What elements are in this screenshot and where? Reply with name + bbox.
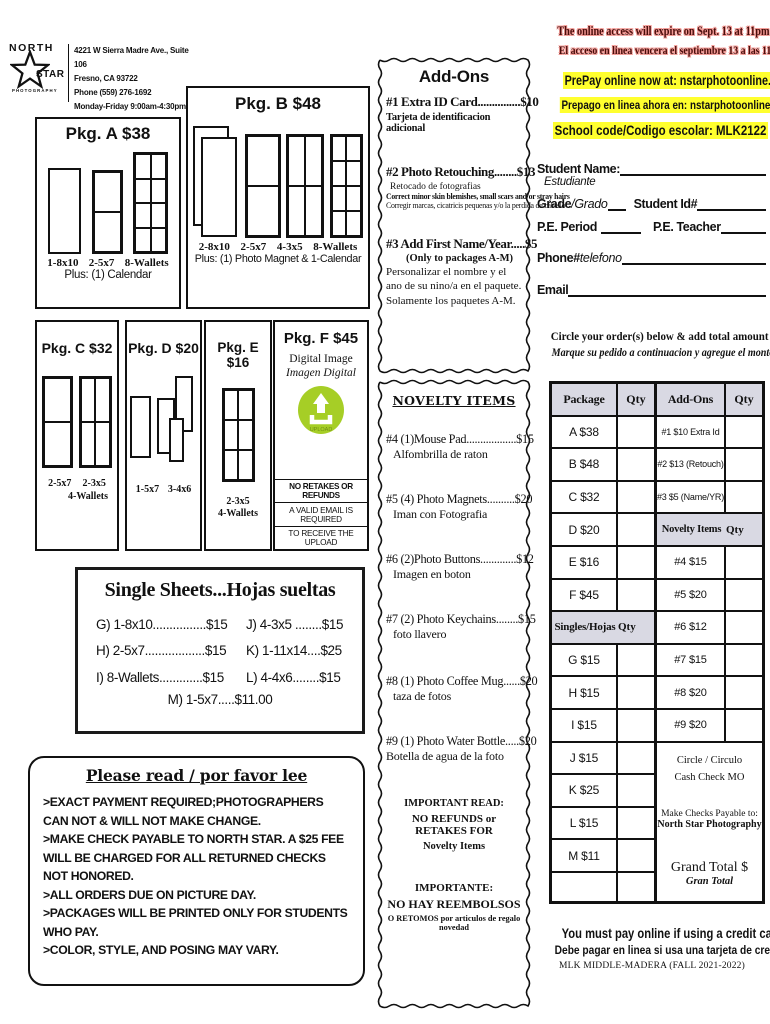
package-b-title: Pkg. B $48	[188, 94, 368, 114]
package-c-thumbnails	[37, 372, 117, 468]
student-name-label: Student Name:	[537, 162, 620, 176]
package-b-box: Pkg. B $48 2-8x10 2-5x7 4-3x5 8-Wallets …	[186, 86, 370, 309]
important-line: Novelty Items	[386, 841, 522, 852]
qty-cell[interactable]	[618, 514, 654, 545]
print-3x5-thumb	[79, 376, 112, 468]
qty-cell[interactable]	[618, 710, 654, 741]
novelty-items-title: NOVELTY ITEMS	[386, 393, 522, 408]
student-id-label: Student Id#	[634, 197, 698, 211]
package-c-labels: 2-5x7 2-3x5	[37, 478, 117, 489]
important-line: O RETOMOS por articulos de regalo noveda…	[386, 914, 522, 932]
addon-row-2: #2 $13 (Retouch)	[657, 449, 762, 482]
package-a-plus: Plus: (1) Calendar	[37, 269, 179, 281]
checks-payable-label: Make Checks Payable to:	[661, 809, 758, 819]
addons-title: Add-Ons	[386, 67, 522, 87]
thumb-label: 8-Wallets	[125, 257, 169, 269]
checks-payable-name: North Star Photography	[657, 819, 761, 830]
qty-cell[interactable]	[618, 775, 654, 806]
grand-total-label-es: Gran Total	[686, 876, 733, 887]
qty-cell[interactable]	[618, 873, 654, 901]
thumb-label: 4-Wallets	[218, 508, 258, 519]
thumb-label: 2-3x5	[83, 478, 106, 489]
print-5x7-thumb	[130, 396, 151, 458]
qty-cell[interactable]	[726, 710, 762, 741]
package-row-f: F $45	[552, 580, 654, 613]
thumb-label: 4-Wallets	[68, 491, 108, 502]
print-3x5-wallets-thumb	[222, 388, 255, 482]
please-read-title: Please read / por favor lee	[43, 766, 350, 785]
upload-icon: UPLOAD	[275, 385, 367, 435]
print-5x7-thumb	[92, 170, 123, 254]
package-row-b: B $48	[552, 449, 654, 482]
novelty-item-6: #6 (2)Photo Buttons.............$12	[386, 552, 522, 567]
package-f-notes: NO RETAKES OR REFUNDS A VALID EMAIL IS R…	[275, 479, 367, 550]
wallets-thumb	[133, 152, 168, 254]
qty-cell[interactable]	[726, 645, 762, 676]
thumb-label: 2-5x7	[48, 478, 71, 489]
addon-item-3: #3 Add First Name/Year.....$5	[386, 236, 522, 252]
thumb-label: 1-5x7	[136, 484, 159, 495]
qty-cell[interactable]	[726, 547, 762, 578]
note-line: A VALID EMAIL IS REQUIRED	[275, 502, 367, 526]
package-row-a: A $38	[552, 417, 654, 450]
single-row-j: J $15	[552, 743, 654, 776]
phone-row: Phone# telefono	[537, 251, 766, 265]
qty-cell[interactable]	[618, 743, 654, 774]
pe-period-field[interactable]	[601, 220, 641, 234]
novelty-row-5: #5 $20	[657, 580, 762, 613]
student-name-field[interactable]	[620, 162, 766, 176]
header-divider	[68, 44, 69, 102]
print-4x6-cluster-thumb	[155, 374, 197, 466]
address-line: Fresno, CA 93722	[74, 72, 194, 86]
single-row-g: G $15	[552, 645, 654, 678]
please-read-lines: >EXACT PAYMENT REQUIRED;PHOTOGRAPHERS CA…	[43, 793, 350, 960]
online-expire-notice-en: The online access will expire on Sept. 1…	[534, 24, 770, 39]
pe-teacher-label: P.E. Teacher	[653, 220, 721, 234]
email-row: Email	[537, 283, 766, 297]
qty-header: Qty	[618, 384, 654, 415]
address-line: Phone (559) 276-1692	[74, 86, 194, 100]
single-sheets-box: Single Sheets...Hojas sueltas G) 1-8x10.…	[75, 567, 365, 734]
order-table-addons-column: Add-Ons Qty #1 $10 Extra Id #2 $13 (Reto…	[654, 384, 762, 901]
package-header: Package	[552, 384, 618, 415]
qty-cell[interactable]	[726, 482, 762, 513]
single-sheets-title: Single Sheets...Hojas sueltas	[78, 579, 362, 602]
single-row-k: K $25	[552, 775, 654, 808]
school-code: School code/Codigo escolar: MLK2122	[534, 122, 770, 139]
qty-cell[interactable]	[618, 840, 654, 871]
email-label: Email	[537, 283, 568, 297]
package-e-labels: 2-3x5	[206, 496, 270, 507]
order-form-page: NORTH STAR PHOTOGRAPHY 4221 W Sierra Mad…	[0, 0, 770, 1024]
novelty-item-9-es: Botella de agua de la foto	[386, 749, 522, 764]
grand-total-label[interactable]: Grand Total $	[671, 860, 748, 876]
novelty-item-8: #8 (1) Photo Coffee Mug......$20	[386, 674, 522, 689]
package-d-labels: 1-5x7 3-4x6	[127, 484, 200, 495]
qty-cell[interactable]	[726, 449, 762, 480]
qty-cell[interactable]	[618, 677, 654, 708]
single-sheets-col1: G) 1-8x10................$15 H) 2-5x7...…	[96, 612, 246, 691]
student-name-row: Student Name:	[537, 162, 766, 176]
thumb-label: 1-8x10	[47, 257, 78, 269]
payment-methods[interactable]: Cash Check MO	[674, 772, 744, 783]
print-3x5-thumb	[286, 134, 324, 238]
novelty-items-box: NOVELTY ITEMS #4 (1)Mouse Pad...........…	[377, 379, 531, 1009]
addon-item-2-note-en: Correct minor skin blemishes, small scar…	[386, 192, 522, 201]
package-e-box: Pkg. E $16 2-3x5 4-Wallets	[204, 320, 272, 551]
sheet-item: H) 2-5x7..................$15	[96, 638, 246, 664]
qty-cell[interactable]	[618, 482, 654, 513]
novelty-important-en: IMPORTANT READ: NO REFUNDS or RETAKES FO…	[386, 798, 522, 852]
payment-cell: Circle / Circulo Cash Check MO Make Chec…	[657, 743, 762, 901]
phone-field[interactable]	[622, 251, 766, 265]
novelty-item-4-es: Alfombrilla de raton	[393, 447, 522, 462]
novelty-item-5: #5 (4) Photo Magnets..........$20	[386, 492, 522, 507]
order-instructions-es: Marque su pedido a continuacion y agregu…	[535, 347, 770, 359]
logo-text-photography: PHOTOGRAPHY	[12, 88, 58, 93]
address-line: Monday-Friday 9:00am-4:30pm	[74, 100, 194, 114]
grade-label: Grade	[537, 197, 571, 211]
notice-line: >PACKAGES WILL BE PRINTED ONLY FOR STUDE…	[43, 904, 350, 941]
print-8x10-thumb	[48, 168, 81, 254]
addon-row-3: #3 $5 (Name/YR)	[657, 482, 762, 515]
package-d-title: Pkg. D $20	[127, 340, 200, 356]
package-a-thumbnails	[37, 146, 179, 254]
qty-cell[interactable]	[726, 677, 762, 708]
addon-item-1-es: Tarjeta de identificacion adicional	[386, 112, 522, 134]
grade-label-es: /Grado	[571, 197, 607, 211]
digital-image-label: Digital Image	[275, 353, 367, 365]
sheet-item: K) 1-11x14....$25	[246, 638, 343, 664]
studio-address: 4221 W Sierra Madre Ave., Suite 106 Fres…	[74, 44, 194, 114]
thumb-label: 2-5x7	[89, 257, 115, 269]
phone-label: Phone#	[537, 251, 580, 265]
thumb-label: 2-8x10	[199, 241, 230, 253]
notice-line: >MAKE CHECK PAYABLE TO NORTH STAR. A $25…	[43, 830, 350, 886]
qty-cell[interactable]	[726, 580, 762, 611]
novelty-row-7: #7 $15	[657, 645, 762, 678]
print-8x10-pair-thumb	[193, 126, 239, 238]
notice-line: >ALL ORDERS DUE ON PICTURE DAY.	[43, 886, 350, 905]
notice-line: >EXACT PAYMENT REQUIRED;PHOTOGRAPHERS CA…	[43, 793, 350, 830]
qty-cell[interactable]	[618, 547, 654, 578]
addon-row-1: #1 $10 Extra Id	[657, 417, 762, 450]
please-read-box: Please read / por favor lee >EXACT PAYME…	[28, 756, 365, 986]
qty-cell[interactable]	[618, 645, 654, 676]
qty-header: Qty	[726, 384, 762, 415]
package-b-thumbnails	[188, 116, 368, 238]
qty-cell[interactable]	[726, 417, 762, 448]
pe-teacher-field[interactable]	[721, 220, 766, 234]
important-line: NO REFUNDS or RETAKES FOR	[386, 813, 522, 837]
sheet-item: J) 4-3x5 ........$15	[246, 612, 343, 638]
package-d-box: Pkg. D $20 1-5x7 3-4x6	[125, 320, 202, 551]
package-b-plus: Plus: (1) Photo Magnet & 1-Calendar	[188, 253, 368, 265]
qty-cell[interactable]	[618, 580, 654, 611]
package-f-box: Pkg. F $45 Digital Image Imagen Digital …	[273, 320, 369, 551]
novelty-item-6-es: Imagen en boton	[393, 567, 522, 582]
thumb-label: 3-4x6	[168, 484, 191, 495]
note-line: TO RECEIVE THE UPLOAD	[275, 526, 367, 550]
pe-row: P.E. Period P.E. Teacher	[537, 220, 766, 234]
email-field[interactable]	[568, 283, 766, 297]
addon-item-3-es: Personalizar el nombre y el ano de su ni…	[386, 265, 522, 308]
prepay-notice-en: PrePay online now at: nstarphotoonline.c…	[534, 72, 770, 89]
thumb-label: 2-3x5	[226, 496, 249, 507]
package-f-title: Pkg. F $45	[275, 330, 367, 347]
package-e-thumbnails	[206, 386, 270, 482]
package-e-title: Pkg. E $16	[206, 340, 270, 370]
thumb-label: 8-Wallets	[313, 241, 357, 253]
package-d-thumbnails	[127, 372, 200, 468]
addon-item-1: #1 Extra ID Card...............$10	[386, 94, 522, 110]
single-row-m: M $11	[552, 840, 654, 873]
student-id-field[interactable]	[697, 197, 766, 211]
important-line: IMPORTANT READ:	[386, 798, 522, 809]
package-row-c: C $32	[552, 482, 654, 515]
empty-row	[552, 873, 654, 901]
qty-cell[interactable]	[618, 808, 654, 839]
student-name-label-es: Estudiante	[544, 176, 766, 188]
package-row-d: D $20	[552, 514, 654, 547]
print-5x7-thumb	[245, 134, 281, 238]
novelty-important-es: IMPORTANTE: NO HAY REEMBOLSOS O RETOMOS …	[386, 882, 522, 932]
novelty-item-5-es: Iman con Fotografia	[393, 507, 522, 522]
single-row-i: I $15	[552, 710, 654, 743]
package-b-labels: 2-8x10 2-5x7 4-3x5 8-Wallets	[188, 241, 368, 253]
order-table-packages-column: Package Qty A $38 B $48 C $32 D $20 E $1…	[552, 384, 654, 901]
singles-header-row: Singles/Hojas Qty	[552, 612, 654, 645]
important-line: NO HAY REEMBOLSOS	[386, 897, 522, 912]
novelty-item-7: #7 (2) Photo Keychains........$15	[386, 612, 522, 627]
novelty-row-9: #9 $20	[657, 710, 762, 743]
thumb-label: 2-5x7	[241, 241, 267, 253]
package-c-title: Pkg. C $32	[37, 340, 117, 356]
credit-card-notice-en: You must pay online if using a credit ca…	[534, 925, 770, 941]
sheet-item-m: M) 1-5x7.....$11.00	[78, 692, 362, 707]
novelty-item-4: #4 (1)Mouse Pad..................$15	[386, 432, 522, 447]
prepay-notice-es: Prepago en linea ahora en: nstarphotoonl…	[534, 97, 770, 113]
addon-item-2-note-es: Corregir marcas, cicatricis pequenas y/o…	[386, 201, 522, 210]
addon-item-2-es: Retocado de fotografias	[390, 182, 522, 192]
novelty-row-6: #6 $12	[657, 612, 762, 645]
important-line: IMPORTANTE:	[386, 882, 522, 894]
student-info-fields: Student Name: Estudiante Grade /Grado St…	[537, 162, 766, 297]
package-row-e: E $16	[552, 547, 654, 580]
school-session-label: MLK MIDDLE-MADERA (FALL 2021-2022)	[534, 961, 770, 971]
print-5x7-thumb	[42, 376, 73, 468]
qty-cell[interactable]	[618, 417, 654, 448]
package-a-box: Pkg. A $38 1-8x10 2-5x7 8-Wallets Plus: …	[35, 117, 181, 309]
single-sheets-list: G) 1-8x10................$15 H) 2-5x7...…	[78, 612, 362, 691]
addon-item-3-note: (Only to packages A-M)	[386, 253, 522, 264]
thumb-label: 4-3x5	[277, 241, 303, 253]
svg-text:UPLOAD: UPLOAD	[310, 427, 333, 433]
qty-cell[interactable]	[726, 612, 762, 643]
circle-payment-label: Circle / Circulo	[677, 755, 742, 766]
package-c-label2: 4-Wallets	[37, 491, 117, 502]
credit-card-notice-es: Debe pagar en linea si usa una tarjeta d…	[534, 943, 770, 957]
package-c-box: Pkg. C $32 2-5x7 2-3x5 4-Wallets	[35, 320, 119, 551]
package-a-title: Pkg. A $38	[37, 124, 179, 144]
logo-text-star: STAR	[36, 69, 64, 80]
single-row-h: H $15	[552, 677, 654, 710]
online-expire-notice-es: El acceso en linea vencera el septiembre…	[534, 43, 770, 58]
order-table: Package Qty A $38 B $48 C $32 D $20 E $1…	[549, 381, 765, 904]
addon-item-2: #2 Photo Retouching........$13	[386, 164, 522, 180]
sheet-item: L) 4-4x6........$15	[246, 665, 343, 691]
novelty-header-row: Novelty Items Qty	[657, 514, 762, 547]
notice-line: >COLOR, STYLE, AND POSING MAY VARY.	[43, 941, 350, 960]
sheet-item: G) 1-8x10................$15	[96, 612, 246, 638]
novelty-item-7-es: foto llavero	[393, 627, 522, 642]
grade-id-row: Grade /Grado Student Id#	[537, 197, 766, 211]
novelty-row-8: #8 $20	[657, 677, 762, 710]
package-a-labels: 1-8x10 2-5x7 8-Wallets	[37, 257, 179, 269]
package-e-label2: 4-Wallets	[206, 508, 270, 519]
order-instructions-en: Circle your order(s) below & add total a…	[545, 331, 769, 343]
addons-header-row: Add-Ons Qty	[657, 384, 762, 417]
sheet-item: I) 8-Wallets.............$15	[96, 665, 246, 691]
wallets-thumb	[330, 134, 363, 238]
packages-header-row: Package Qty	[552, 384, 654, 417]
phone-label-es: telefono	[580, 251, 622, 265]
grade-field[interactable]	[608, 197, 626, 211]
pe-period-label: P.E. Period	[537, 220, 597, 234]
novelty-item-8-es: taza de fotos	[393, 689, 522, 704]
addons-header: Add-Ons	[657, 384, 726, 415]
addons-box: Add-Ons #1 Extra ID Card...............$…	[377, 57, 531, 374]
note-line: NO RETAKES OR REFUNDS	[275, 479, 367, 503]
address-line: 4221 W Sierra Madre Ave., Suite 106	[74, 44, 194, 72]
single-row-l: L $15	[552, 808, 654, 841]
north-star-logo: NORTH STAR PHOTOGRAPHY	[8, 42, 70, 108]
novelty-row-4: #4 $15	[657, 547, 762, 580]
qty-cell[interactable]	[618, 449, 654, 480]
novelty-item-9: #9 (1) Photo Water Bottle.....$20	[386, 734, 522, 749]
single-sheets-col2: J) 4-3x5 ........$15 K) 1-11x14....$25 L…	[246, 612, 343, 691]
imagen-digital-label: Imagen Digital	[275, 367, 367, 379]
